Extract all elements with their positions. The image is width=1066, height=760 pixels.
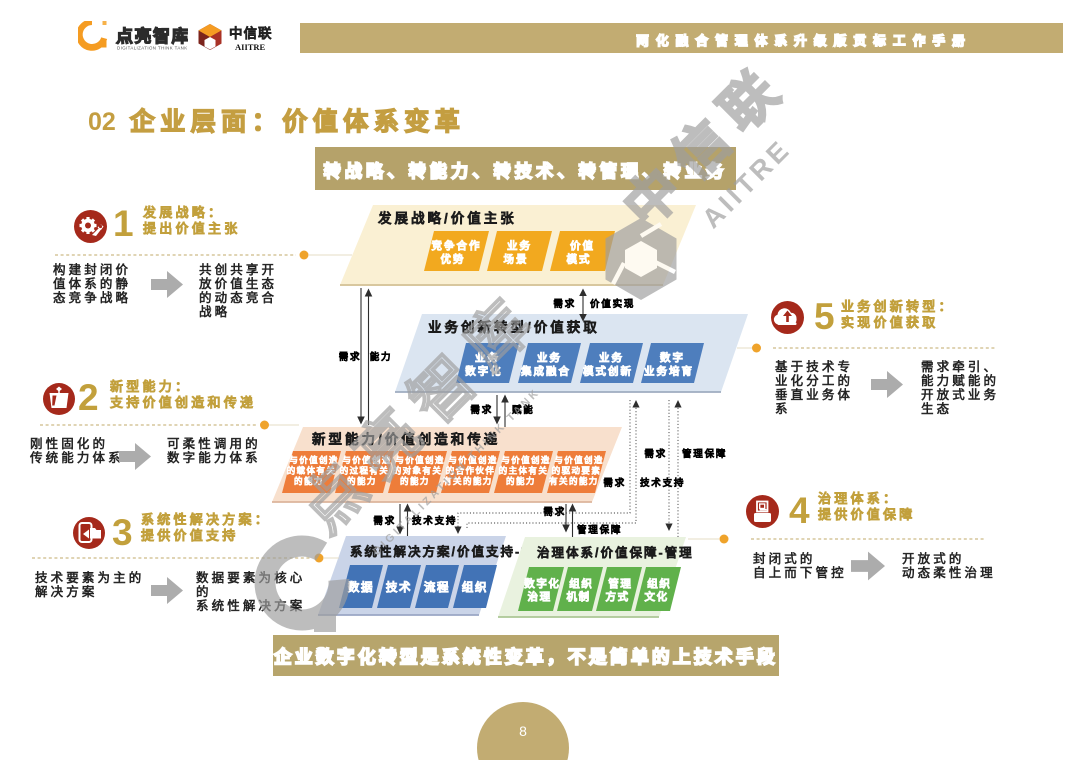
- svg-text:系统性解决方案/价值支持-技术: 系统性解决方案/价值支持-技术: [350, 544, 550, 559]
- svg-text:技术支持: 技术支持: [640, 477, 685, 489]
- svg-text:点亮智库: 点亮智库: [116, 26, 188, 46]
- svg-text:与价值创造: 与价值创造: [289, 455, 339, 465]
- svg-text:业务: 业务: [507, 239, 532, 252]
- svg-text:组织: 组织: [647, 577, 671, 590]
- svg-text:AIITRE: AIITRE: [235, 42, 266, 52]
- svg-text:需求: 需求: [543, 506, 566, 518]
- svg-text:的载体有关: 的载体有关: [287, 466, 337, 476]
- svg-text:有关的能力: 有关的能力: [549, 476, 599, 486]
- svg-text:治理: 治理: [527, 590, 551, 603]
- svg-text:管理保障: 管理保障: [577, 524, 622, 536]
- svg-text:方式: 方式: [605, 590, 629, 603]
- svg-text:需求: 需求: [644, 448, 667, 460]
- svg-text:模式: 模式: [567, 253, 592, 266]
- svg-text:需求: 需求: [373, 515, 396, 527]
- svg-text:DIGITALIZATION THINK TANK: DIGITALIZATION THINK TANK: [117, 46, 188, 51]
- svg-text:与价值创造: 与价值创造: [395, 455, 445, 465]
- svg-text:业务: 业务: [599, 351, 624, 364]
- svg-text:治理体系/价值保障-管理: 治理体系/价值保障-管理: [537, 545, 694, 560]
- svg-text:点亮智库: 点亮智库: [288, 279, 555, 546]
- svg-text:新型能力/价值创造和传递: 新型能力/价值创造和传递: [312, 431, 500, 447]
- svg-text:的驱动要素: 的驱动要素: [552, 466, 602, 476]
- svg-text:场景: 场景: [504, 253, 529, 266]
- svg-text:中信联: 中信联: [613, 52, 800, 239]
- svg-text:技术支持: 技术支持: [412, 515, 457, 527]
- svg-text:优势: 优势: [441, 253, 466, 266]
- svg-text:中信联: 中信联: [229, 25, 273, 41]
- svg-text:能力: 能力: [370, 351, 393, 363]
- svg-text:管理保障: 管理保障: [682, 448, 727, 460]
- svg-text:发展战略/价值主张: 发展战略/价值主张: [377, 210, 517, 226]
- svg-text:管理: 管理: [608, 577, 632, 590]
- svg-text:价值实现: 价值实现: [590, 298, 635, 310]
- svg-text:业务培育: 业务培育: [644, 365, 694, 378]
- svg-text:与价值创造: 与价值创造: [501, 455, 551, 465]
- svg-text:的对象有关: 的对象有关: [393, 466, 443, 476]
- svg-text:的能力: 的能力: [347, 476, 377, 486]
- svg-text:DIGITALIZATION THINK TANK: DIGITALIZATION THINK TANK: [371, 386, 543, 558]
- svg-text:与价值创造: 与价值创造: [448, 455, 498, 465]
- svg-text:与价值创造: 与价值创造: [342, 455, 392, 465]
- svg-text:数字化: 数字化: [464, 365, 503, 378]
- svg-text:技术: 技术: [386, 580, 412, 594]
- svg-text:的能力: 的能力: [506, 476, 536, 486]
- svg-text:需求: 需求: [470, 404, 493, 416]
- svg-text:的能力: 的能力: [294, 476, 324, 486]
- svg-text:的合作伙伴: 的合作伙伴: [446, 466, 496, 476]
- svg-text:数字: 数字: [659, 351, 685, 364]
- svg-text:组织: 组织: [462, 580, 488, 594]
- svg-text:的主体有关: 的主体有关: [499, 466, 549, 476]
- svg-text:模式创新: 模式创新: [583, 365, 633, 378]
- svg-text:的过程有关: 的过程有关: [340, 466, 390, 476]
- svg-text:与价值创造: 与价值创造: [554, 455, 604, 465]
- svg-text:竞争合作: 竞争合作: [432, 239, 482, 252]
- svg-text:机制: 机制: [566, 590, 590, 603]
- svg-text:集成融合: 集成融合: [520, 365, 571, 378]
- svg-text:业务创新转型/价值获取: 业务创新转型/价值获取: [428, 319, 600, 335]
- svg-text:需求: 需求: [603, 477, 626, 489]
- svg-text:的能力: 的能力: [400, 476, 430, 486]
- svg-text:赋能: 赋能: [512, 404, 535, 416]
- svg-text:业务: 业务: [537, 351, 562, 364]
- svg-text:文化: 文化: [643, 590, 668, 603]
- svg-text:数据: 数据: [348, 580, 374, 594]
- svg-text:有关的能力: 有关的能力: [443, 476, 493, 486]
- svg-text:价值: 价值: [570, 239, 595, 252]
- svg-text:流程: 流程: [424, 580, 450, 594]
- svg-text:数字化: 数字化: [523, 577, 560, 590]
- svg-text:业务: 业务: [475, 351, 500, 364]
- svg-text:需求: 需求: [553, 298, 576, 310]
- svg-text:组织: 组织: [569, 577, 593, 590]
- svg-text:需求: 需求: [339, 351, 362, 363]
